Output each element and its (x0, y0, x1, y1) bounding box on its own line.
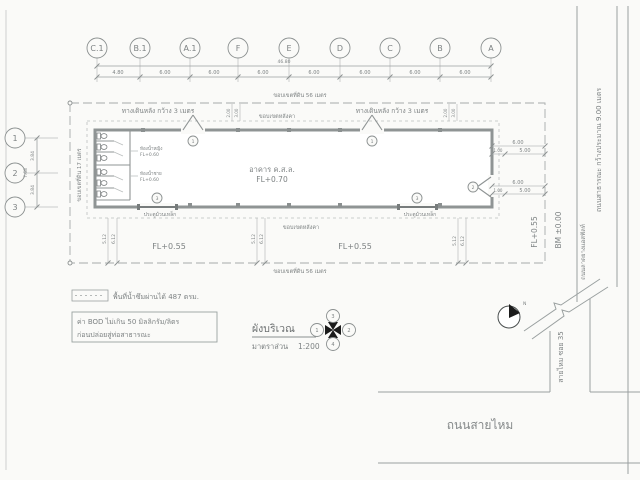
side-level-label: FL+0.55 (530, 216, 539, 248)
grid-col-label: C (387, 44, 393, 53)
yard-dim: 5.12 (251, 234, 257, 244)
yard-dim: 6.12 (460, 236, 466, 246)
female-toilet-level: FL+0.60 (140, 152, 159, 158)
boundary-bottom-label: ขอบเขตที่ดิน 56 เมตร (273, 267, 326, 275)
grid-col-label: D (337, 44, 343, 53)
col-dim: 6.00 (208, 70, 219, 76)
permeable-area-label: พื้นที่น้ำซึมผ่านได้ 487 ตรม. (113, 290, 199, 301)
yard-dim: 5.12 (102, 234, 108, 244)
grid-row-label: 2 (12, 169, 17, 178)
grid-row-label: 3 (12, 203, 17, 212)
grid-col-label: A (488, 44, 494, 53)
right-dim: 5.00 (519, 188, 530, 194)
walk-dim: 3.00 (234, 108, 239, 117)
road-break-lines (524, 279, 608, 339)
row-dim: 3.84 (30, 185, 36, 195)
drawing-title: ผังบริเวณ (252, 323, 295, 335)
door-tag-number: 3 (156, 196, 159, 202)
grid-col-label: E (286, 44, 291, 53)
grid-stems (97, 58, 491, 82)
scale-value: 1:200 (298, 342, 320, 351)
elevation-tag-number: 1 (315, 328, 318, 334)
row-grid: 1 2 3 3.84 3.84 7.68 (5, 128, 58, 217)
door-tag-number: 2 (472, 185, 475, 191)
public-road-label: ถนนสาธารณะ กว้างประมาณ 9.00 เมตร (595, 88, 603, 213)
female-toilet-label: ห้องน้ำหญิง (140, 145, 162, 152)
col-dim: 6.00 (409, 70, 420, 76)
main-road-label: ถนนสายไหม (447, 418, 514, 432)
grid-col-label: F (236, 44, 241, 53)
benchmark-label: BM ±0.00 (554, 211, 563, 248)
elevation-tag-number: 2 (347, 328, 350, 334)
col-dim: 4.80 (112, 70, 123, 76)
right-dim: 6.00 (512, 140, 523, 146)
boundary-left-label: ขอบเขตที่ดิน 17 เมตร (75, 148, 83, 201)
door-tag-number: 1 (192, 139, 195, 145)
walkway-left-label: ทางเดินหลัง กว้าง 3 เมตร (122, 107, 195, 115)
boundary-corner (68, 101, 72, 105)
grid-col-label: B (437, 44, 443, 53)
col-dim: 6.00 (308, 70, 319, 76)
right-dim: 5.00 (519, 148, 530, 154)
right-dims: 6.00 1.00 5.00 6.00 1.00 5.00 FL+0.55 BM… (490, 140, 564, 248)
door-opening (181, 125, 205, 134)
title-block: ผังบริเวณ มาตราส่วน 1:200 (252, 323, 320, 351)
roller-door-label: ประตูม้วนเหล็ก (144, 210, 176, 218)
site-plan-sheet: C.1 B.1 A.1 F E D C B A 46.80 4.80 6.00 … (0, 0, 640, 480)
right-dim: 1.00 (494, 188, 503, 193)
yard-dim: 5.12 (452, 236, 458, 246)
walk-dim: 3.00 (451, 108, 456, 117)
asphalt-road-label: ถนนลาดยางแอสฟัลท์ (579, 224, 587, 280)
yard-level-label: FL+0.55 (152, 242, 186, 251)
north-letter: N (523, 301, 526, 307)
elevation-tag-number: 3 (331, 314, 334, 320)
bod-note-line2: ก่อนปล่อยสู่ท่อสาธารณะ (77, 331, 151, 339)
site-plan-drawing: C.1 B.1 A.1 F E D C B A 46.80 4.80 6.00 … (0, 0, 640, 480)
building-level: FL+0.70 (256, 175, 288, 184)
total-width-dim: 46.80 (278, 59, 291, 65)
grid-col-label: C.1 (90, 44, 103, 53)
door-tag-number: 1 (371, 139, 374, 145)
door-tag-number: 3 (416, 196, 419, 202)
roof-edge-top-label: ขอบเขตหลังคา (259, 113, 295, 120)
walk-dim: 2.00 (443, 108, 448, 117)
walk-dim: 2.00 (226, 108, 231, 117)
walkway-right-label: ทางเดินหลัง กว้าง 3 เมตร (356, 107, 429, 115)
boundary-top-label: ขอบเขตที่ดิน 56 เมตร (273, 91, 326, 99)
roller-door-label: ประตูม้วนเหล็ก (404, 210, 436, 218)
building: 1 1 2 3 3 ประตูม้วนเหล็ก ประตูม้วนเหล็ก (95, 115, 496, 218)
column-grid: C.1 B.1 A.1 F E D C B A 46.80 4.80 6.00 … (87, 38, 501, 82)
scale-label: มาตราส่วน (252, 342, 288, 351)
yard-level-label: FL+0.55 (338, 242, 372, 251)
elevation-tag-number: 4 (331, 342, 334, 348)
roof-edge-bottom-label: ขอบเขตหลังคา (283, 224, 319, 231)
grid-col-label: B.1 (133, 44, 146, 53)
right-dim: 1.00 (494, 148, 503, 153)
col-dim: 6.00 (159, 70, 170, 76)
total-height-dim: 7.68 (23, 168, 29, 178)
grid-stems (25, 138, 58, 207)
dim-lines (97, 66, 491, 77)
soi-label: สายไหม ซอย 35 (556, 331, 565, 382)
grid-col-label: A.1 (184, 44, 197, 53)
male-toilet-label: ห้องน้ำชาย (140, 170, 162, 177)
right-dim: 6.00 (512, 180, 523, 186)
door-opening (360, 125, 384, 134)
col-dim: 6.00 (459, 70, 470, 76)
legend: พื้นที่น้ำซึมผ่านได้ 487 ตรม. ค่า BOD ไม… (72, 290, 217, 342)
row-dim: 3.84 (30, 151, 36, 161)
roads: ถนนสาธารณะ กว้างประมาณ 9.00 เมตร ถนนลาดย… (378, 6, 640, 474)
elevation-key-arrows (325, 322, 341, 338)
bod-note-line1: ค่า BOD ไม่เกิน 50 มิลลิกรัม/ลิตร (77, 317, 180, 326)
yard-dim: 6.12 (111, 234, 117, 244)
male-toilet-level: FL+0.60 (140, 177, 159, 183)
north-arrow: N (498, 301, 526, 328)
boundary-corner (68, 261, 72, 265)
col-dim: 6.00 (257, 70, 268, 76)
yard-dim: 6.12 (259, 234, 265, 244)
grid-row-label: 1 (12, 134, 17, 143)
col-dim: 6.00 (359, 70, 370, 76)
building-label: อาคาร ค.ส.ล. (249, 165, 295, 174)
